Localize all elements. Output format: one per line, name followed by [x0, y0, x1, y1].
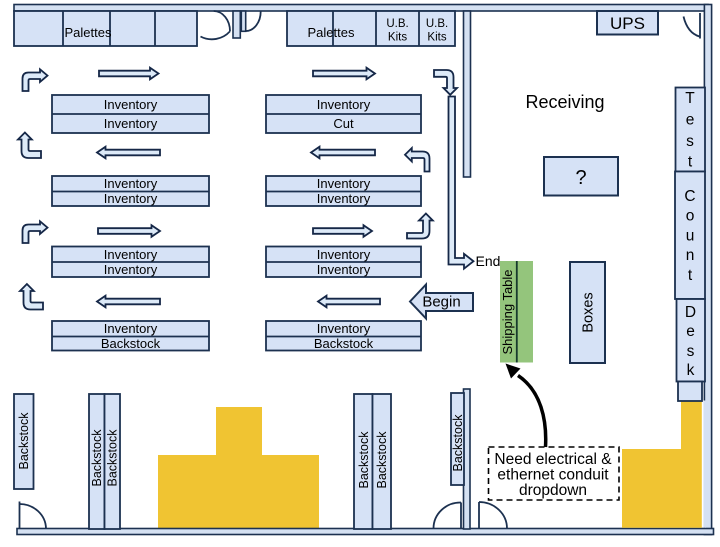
svg-text:D: D	[685, 304, 696, 321]
svg-text:Kits: Kits	[388, 32, 407, 44]
svg-text:End: End	[476, 253, 501, 269]
svg-text:k: k	[687, 362, 695, 379]
svg-text:Inventory: Inventory	[104, 97, 158, 112]
svg-text:Palettes: Palettes	[65, 25, 112, 40]
svg-text:Inventory: Inventory	[317, 247, 371, 262]
svg-text:Backstock: Backstock	[451, 414, 465, 472]
svg-text:e: e	[686, 112, 695, 129]
svg-text:Palettes: Palettes	[308, 25, 355, 40]
svg-text:e: e	[686, 323, 695, 340]
svg-text:Begin: Begin	[422, 294, 460, 311]
svg-text:?: ?	[575, 167, 586, 189]
svg-text:Inventory: Inventory	[104, 176, 158, 191]
svg-text:Cut: Cut	[333, 116, 354, 131]
svg-text:Backstock: Backstock	[375, 431, 389, 489]
svg-text:Inventory: Inventory	[317, 321, 371, 336]
svg-text:Inventory: Inventory	[317, 262, 371, 277]
svg-text:Backstock: Backstock	[17, 412, 31, 470]
svg-text:t: t	[688, 267, 693, 284]
svg-text:Need electrical &: Need electrical &	[494, 451, 612, 468]
svg-text:Shipping Table: Shipping Table	[500, 269, 515, 354]
svg-text:u: u	[686, 228, 695, 245]
svg-text:s: s	[686, 133, 694, 150]
svg-text:Inventory: Inventory	[317, 191, 371, 206]
svg-text:C: C	[684, 188, 695, 205]
svg-text:Backstock: Backstock	[106, 429, 120, 487]
svg-text:Inventory: Inventory	[104, 321, 158, 336]
svg-text:T: T	[685, 90, 695, 107]
svg-text:Backstock: Backstock	[101, 336, 161, 351]
svg-text:Boxes: Boxes	[581, 292, 597, 332]
svg-text:Backstock: Backstock	[90, 429, 104, 487]
svg-text:U.B.: U.B.	[386, 18, 408, 30]
svg-text:Kits: Kits	[427, 32, 446, 44]
svg-text:n: n	[686, 247, 695, 264]
svg-text:Inventory: Inventory	[104, 191, 158, 206]
svg-text:U.B.: U.B.	[426, 18, 448, 30]
svg-text:Inventory: Inventory	[104, 116, 158, 131]
svg-text:Receiving: Receiving	[525, 92, 604, 112]
svg-text:Inventory: Inventory	[104, 262, 158, 277]
svg-text:Backstock: Backstock	[314, 336, 374, 351]
svg-text:Inventory: Inventory	[317, 176, 371, 191]
svg-text:Backstock: Backstock	[357, 431, 371, 489]
svg-text:s: s	[687, 343, 695, 360]
svg-text:UPS: UPS	[610, 14, 645, 33]
svg-text:Inventory: Inventory	[104, 247, 158, 262]
svg-text:o: o	[686, 208, 695, 225]
svg-text:ethernet conduit: ethernet conduit	[497, 467, 609, 484]
svg-text:Inventory: Inventory	[317, 97, 371, 112]
svg-text:t: t	[688, 154, 693, 171]
svg-text:dropdown: dropdown	[519, 482, 587, 499]
